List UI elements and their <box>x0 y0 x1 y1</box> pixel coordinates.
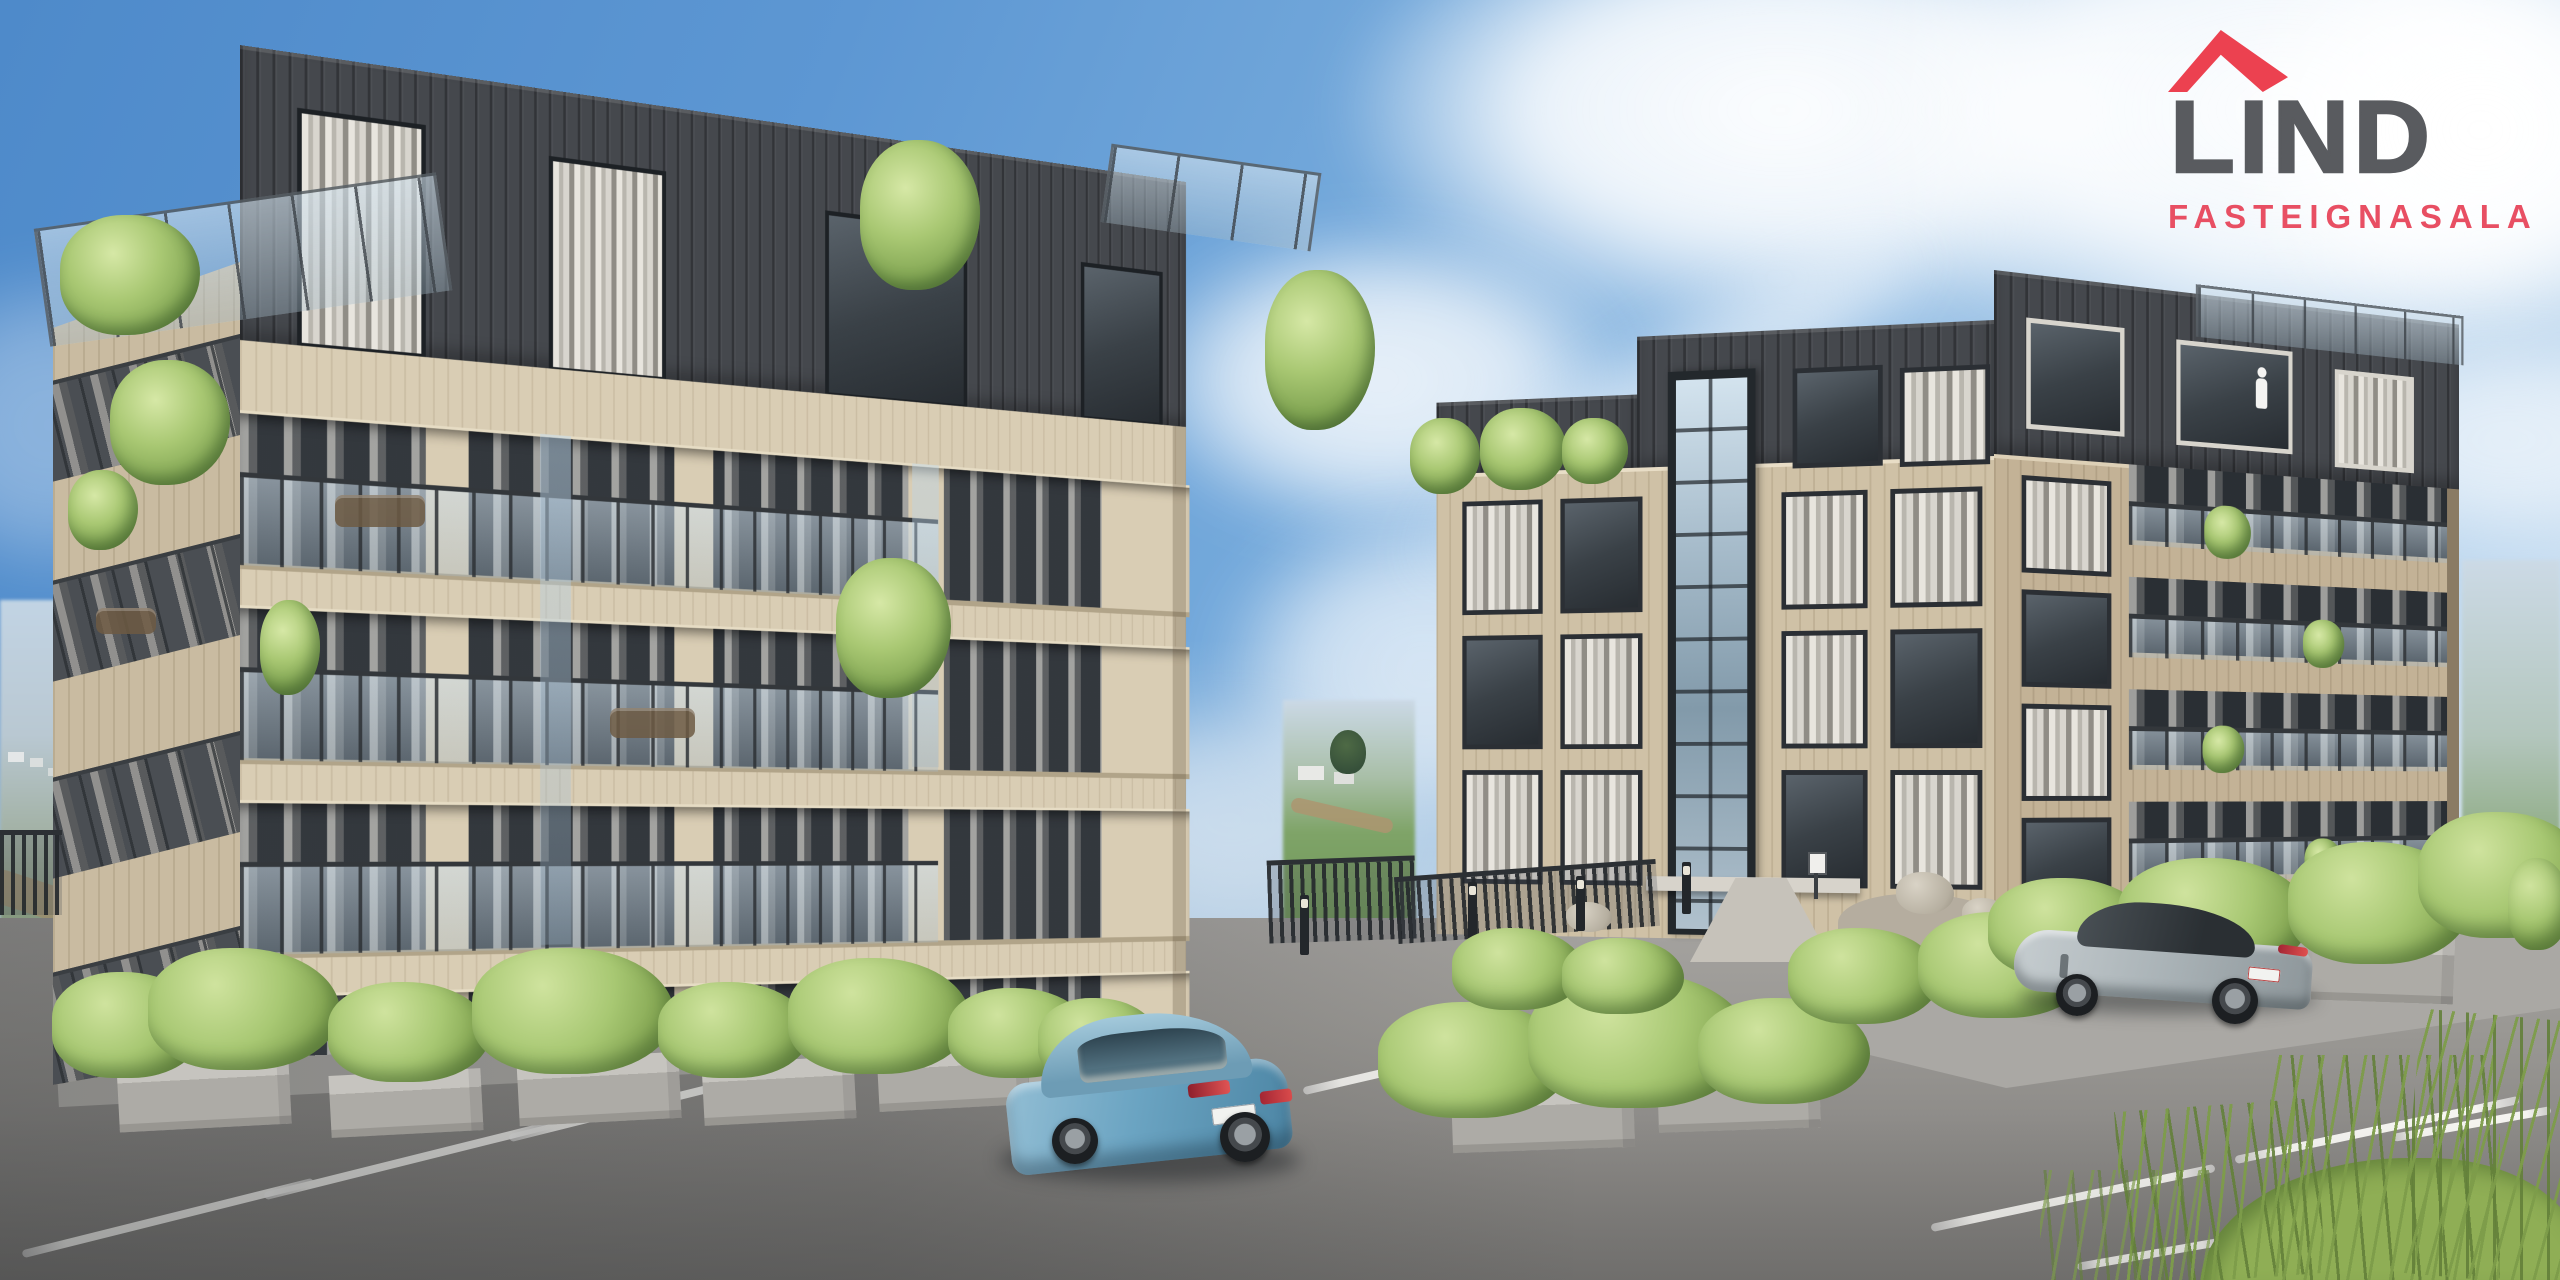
distant-house <box>1298 766 1324 780</box>
penthouse-window <box>549 156 666 382</box>
window <box>2335 369 2414 473</box>
window <box>1890 628 1982 748</box>
bush <box>328 982 490 1082</box>
window <box>1900 364 1990 467</box>
window <box>1560 633 1642 749</box>
bush <box>788 958 970 1074</box>
elevator-glass <box>1676 377 1747 929</box>
landscape-boulder <box>1566 902 1612 932</box>
person-on-balcony <box>2256 378 2267 409</box>
bush <box>1562 938 1684 1014</box>
lind-logo: LIND FASTEIGNASALA <box>2158 22 2488 232</box>
balcony-band <box>53 723 240 883</box>
grass-tuft <box>2040 1170 2210 1280</box>
car-side-vent <box>2059 954 2069 978</box>
window <box>1781 630 1867 749</box>
bush <box>2508 858 2560 950</box>
patio-furniture <box>96 608 156 634</box>
patio-furniture <box>610 708 695 738</box>
architectural-rendering: LIND FASTEIGNASALA <box>0 0 2560 1280</box>
landscape-boulder <box>1896 872 1954 914</box>
gray-car <box>2000 880 2340 1030</box>
window <box>1462 635 1542 750</box>
person-head <box>2257 367 2266 378</box>
bollard-light <box>1300 895 1309 955</box>
bollard-light <box>1576 876 1585 931</box>
window <box>2022 589 2112 689</box>
distant-house <box>30 758 43 767</box>
balcony-railing <box>240 861 938 955</box>
right-building-left-face <box>1436 268 1994 940</box>
window <box>1890 770 1982 890</box>
brand-tagline: FASTEIGNASALA <box>2168 200 2538 233</box>
penthouse-window <box>1081 262 1163 427</box>
window <box>1462 499 1542 615</box>
window <box>2176 339 2292 454</box>
car-wheel <box>1052 1118 1098 1164</box>
window <box>2026 317 2124 436</box>
window <box>1890 486 1982 607</box>
bollard-light <box>1468 882 1477 940</box>
balcony-glass-screen <box>540 434 571 945</box>
balcony-railing <box>2129 726 2459 771</box>
balcony-stack <box>2129 464 2459 912</box>
distant-house <box>8 752 24 762</box>
car-wheel <box>2056 974 2098 1016</box>
brand-name: LIND <box>2170 86 2434 188</box>
balcony-band <box>53 526 240 686</box>
patio-furniture <box>335 495 425 527</box>
bush <box>472 948 674 1074</box>
window <box>2022 475 2112 577</box>
distant-tree <box>1330 730 1366 774</box>
window <box>1781 490 1867 610</box>
balcony-plant <box>2303 619 2344 669</box>
entrance-sign-post <box>1814 873 1818 899</box>
bush <box>148 948 340 1070</box>
bollard-light <box>1682 862 1691 914</box>
entrance-sign <box>1808 852 1827 875</box>
grass-tuft <box>2399 1009 2560 1280</box>
blue-car <box>990 1000 1320 1200</box>
left-apartment-building <box>50 40 1295 1085</box>
balcony-plant <box>2203 725 2245 773</box>
car-wheel <box>2212 978 2258 1024</box>
window <box>2022 704 2112 801</box>
car-wheel <box>1220 1112 1270 1162</box>
fence <box>0 830 62 915</box>
corner-shading <box>1173 426 1186 1021</box>
window <box>1793 365 1883 469</box>
window <box>1560 496 1642 613</box>
elevator-shaft <box>1668 368 1756 936</box>
